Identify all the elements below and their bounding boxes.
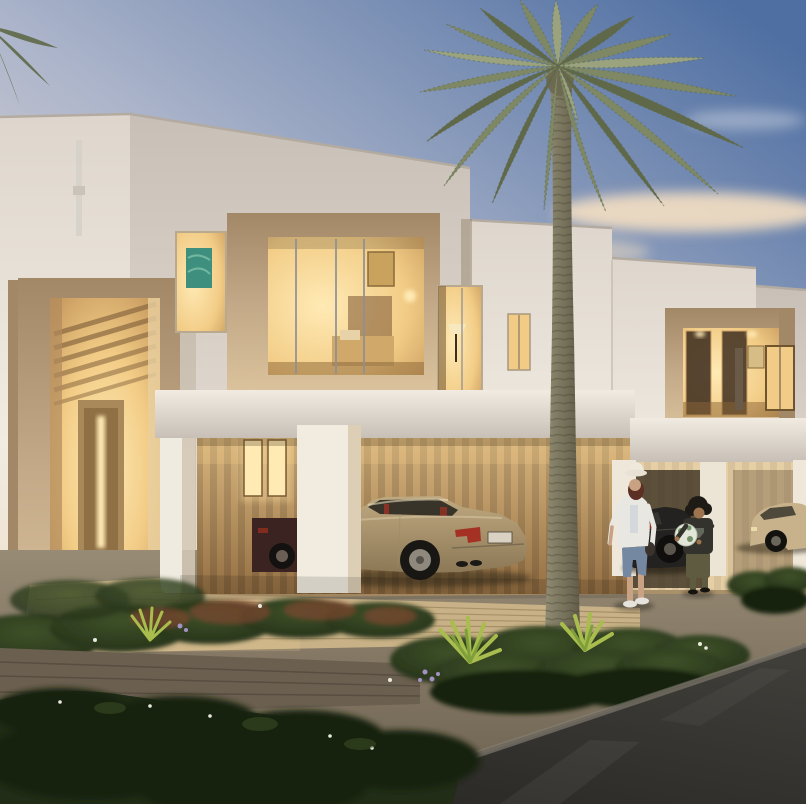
narrow-window [508, 314, 530, 370]
license-plate [488, 532, 512, 543]
garage-window [268, 440, 286, 496]
child-hand [697, 540, 702, 545]
woman-leg [638, 574, 644, 601]
door-light-slot [97, 416, 105, 548]
column-shade [348, 425, 361, 593]
curtain [438, 286, 446, 396]
garage-car-taillight [258, 528, 268, 533]
lamp-window [438, 286, 482, 396]
child-pants [686, 552, 710, 578]
woman-leg [627, 576, 633, 603]
woman-tee [630, 505, 638, 533]
floor-strip [683, 402, 779, 417]
child-shoe [688, 590, 698, 595]
woman-forearm [610, 527, 612, 544]
garage-window [244, 440, 262, 496]
child-shoe [700, 588, 710, 593]
downlight [747, 331, 757, 337]
child-face [694, 508, 705, 519]
sun-hat-brim [625, 470, 647, 477]
child-hand [675, 537, 680, 542]
portal-jamb [160, 438, 182, 593]
bay-window-left [227, 213, 440, 410]
exhaust [470, 560, 482, 566]
garage-car-rim [276, 550, 288, 562]
garage-car [252, 518, 300, 572]
woman-shoe [635, 598, 649, 605]
canopy-beam-right [630, 418, 806, 462]
lamp-glow [404, 290, 416, 302]
jamb-inner-face [182, 438, 195, 593]
woman-face [629, 479, 641, 491]
downspout-bracket [73, 186, 85, 195]
hub [416, 556, 424, 564]
wall-art [368, 252, 394, 286]
floor-strip [268, 362, 424, 375]
portal-inner-left [50, 298, 62, 570]
downlight [695, 331, 705, 337]
headrest-red [440, 507, 447, 516]
ball-patch [687, 536, 693, 542]
dark-car-rim [664, 543, 676, 555]
art-window [176, 232, 226, 332]
sedan-rim [771, 536, 781, 546]
wall-art [748, 346, 764, 368]
woman-shoe [623, 601, 637, 608]
exhaust [456, 561, 468, 567]
slit-window [735, 348, 743, 410]
glass-top-shade [268, 237, 424, 249]
headrest-red [384, 504, 389, 514]
villa-render-image [0, 0, 806, 804]
pillow [340, 330, 360, 340]
sedan-headlight [751, 527, 757, 531]
